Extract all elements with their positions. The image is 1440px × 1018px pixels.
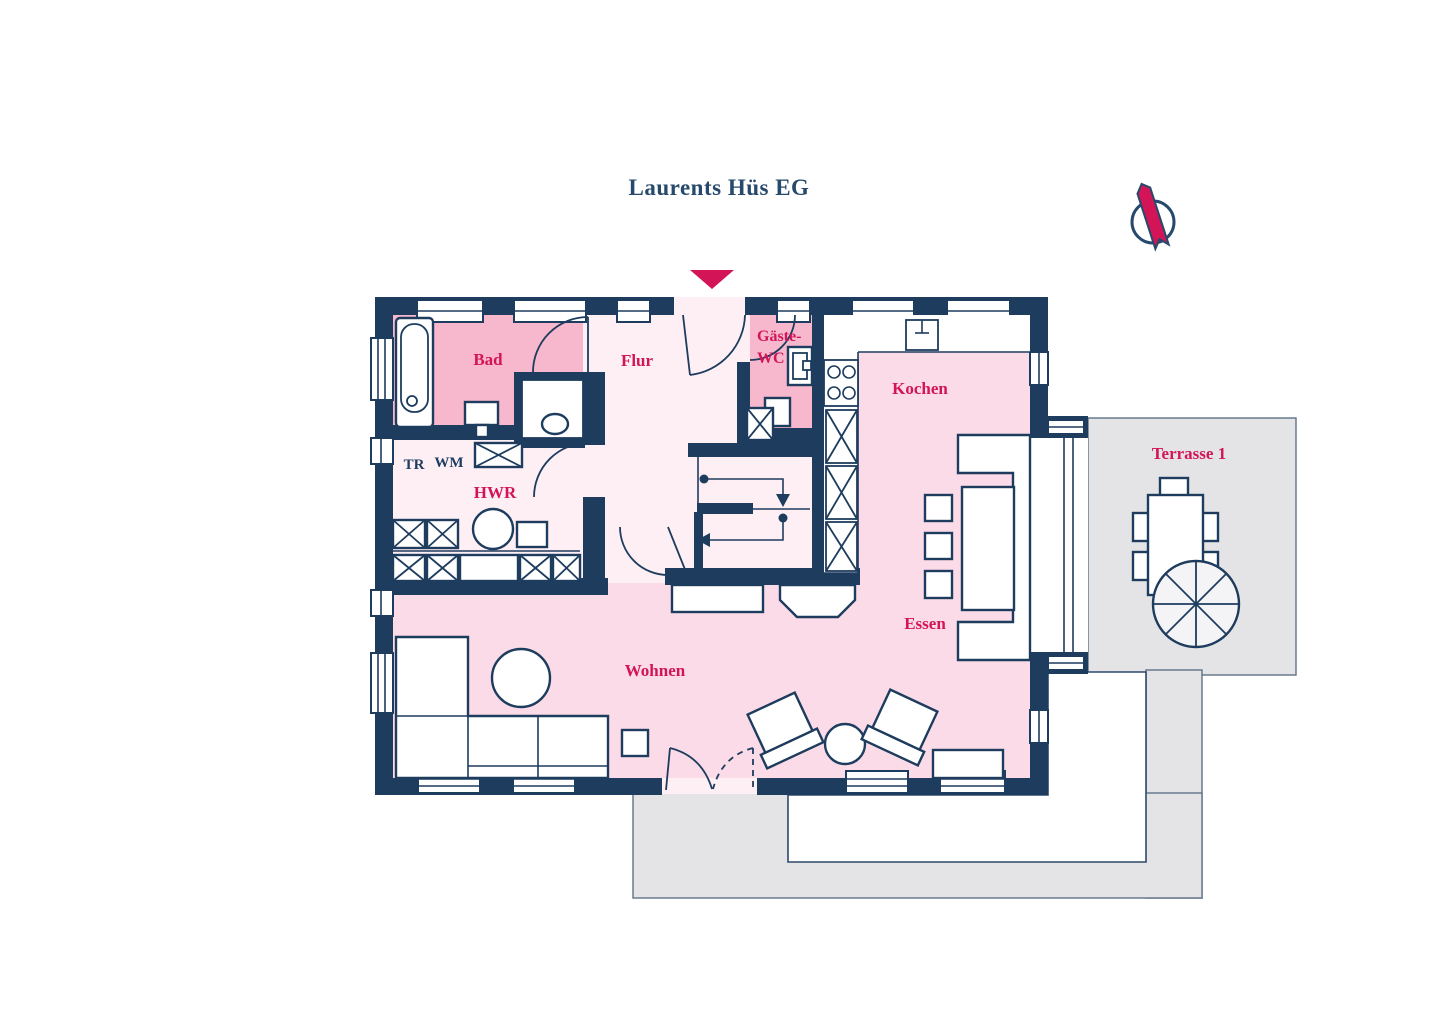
window (371, 338, 393, 400)
lowboard (933, 750, 1003, 778)
console-under-stairs (780, 585, 855, 617)
wall-shower-left (514, 372, 522, 440)
terrace-chair (1133, 513, 1149, 541)
wall-stairs-north (688, 443, 812, 457)
sliding-door-east (1030, 416, 1088, 674)
shower (522, 380, 583, 438)
window (846, 771, 908, 793)
hwr-basin (473, 509, 513, 549)
window (1030, 710, 1048, 743)
hwr-label: HWR (474, 483, 517, 502)
terrace-chair (1202, 513, 1218, 541)
wall-bad-flur (583, 372, 605, 445)
wall-shower-top (514, 372, 585, 380)
washing-machine (475, 443, 522, 467)
bad-sink (542, 414, 568, 434)
side-table-square (622, 730, 648, 756)
kitchen-sink (906, 320, 938, 350)
window (777, 300, 810, 322)
gwc-toilet (788, 347, 812, 385)
dining-table (962, 487, 1014, 610)
north-compass-icon (1132, 182, 1174, 249)
window (371, 590, 393, 616)
sideboard-under-stairs (672, 585, 763, 612)
entrance-gap (674, 297, 745, 315)
wall-gwc-kochen (812, 315, 824, 573)
dining-chair (925, 571, 952, 598)
window (371, 653, 393, 713)
essen-label: Essen (904, 614, 946, 633)
terrace-chair (1133, 552, 1149, 580)
parasol (1153, 561, 1239, 647)
bad-label: Bad (473, 350, 503, 369)
page-title: Laurents Hüs EG (629, 175, 810, 200)
floorplan-page: Bad Flur Gäste- WC Kochen HWR Essen Wohn… (0, 0, 1440, 1018)
flur-label: Flur (621, 351, 654, 370)
wohnen-label: Wohnen (625, 661, 686, 680)
dining-chair (925, 533, 952, 559)
sliding-door-reveal (1030, 438, 1088, 652)
kitchen-tall-cabinets (826, 410, 857, 571)
kochen-label: Kochen (892, 379, 948, 398)
gaeste-wc-label-line2: WC (757, 350, 785, 367)
tech-shaft (747, 408, 773, 440)
dining-chair (925, 495, 952, 521)
wall-hwr-east (583, 497, 605, 580)
window (617, 300, 650, 322)
side-table-round (825, 724, 865, 764)
terrasse-label: Terrasse 1 (1152, 444, 1226, 463)
floorplan-svg: Bad Flur Gäste- WC Kochen HWR Essen Wohn… (0, 0, 1440, 1018)
hwr-counter-row2 (393, 555, 580, 581)
entrance-arrow-icon (690, 270, 734, 289)
bathtub (396, 318, 433, 427)
window (371, 438, 393, 464)
stair-divider (697, 503, 753, 514)
tr-label: TR (404, 457, 425, 473)
wm-label: WM (434, 455, 463, 471)
stove (824, 360, 858, 406)
terrace-chair (1160, 478, 1188, 496)
window (1030, 352, 1048, 385)
coffee-table (492, 649, 550, 707)
gaeste-wc-label-line1: Gäste- (757, 328, 801, 345)
wall-shower-bottom (514, 438, 585, 448)
